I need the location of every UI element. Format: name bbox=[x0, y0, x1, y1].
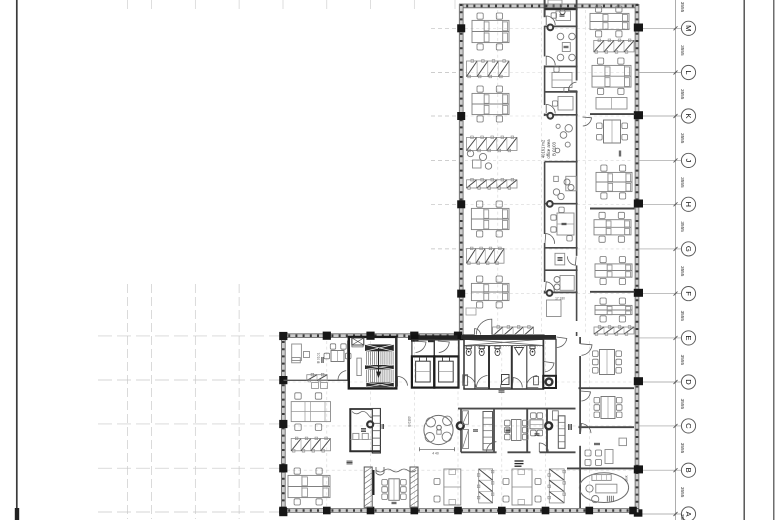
svg-text:B 0103: B 0103 bbox=[552, 141, 557, 155]
svg-text:office area: office area bbox=[546, 139, 551, 159]
svg-text:3555: 3555 bbox=[680, 443, 685, 454]
svg-text:3555: 3555 bbox=[680, 514, 685, 520]
svg-text:K: K bbox=[684, 113, 693, 118]
svg-text:3555: 3555 bbox=[680, 2, 685, 13]
svg-text:D: D bbox=[684, 379, 693, 385]
svg-text:3555: 3555 bbox=[680, 311, 685, 322]
svg-text:B 0103: B 0103 bbox=[408, 416, 412, 426]
svg-text:E: E bbox=[684, 335, 693, 340]
svg-text:3555: 3555 bbox=[680, 355, 685, 366]
svg-text:3555: 3555 bbox=[680, 221, 685, 232]
svg-text:L: L bbox=[684, 70, 693, 74]
svg-text:J: J bbox=[684, 159, 693, 163]
svg-text:B: B bbox=[684, 468, 693, 473]
svg-text:3555: 3555 bbox=[680, 89, 685, 100]
svg-text:4 40: 4 40 bbox=[432, 452, 439, 456]
svg-text:C: C bbox=[684, 423, 693, 429]
svg-text:3555: 3555 bbox=[680, 45, 685, 56]
svg-text:F: F bbox=[684, 291, 693, 296]
svg-text:3555: 3555 bbox=[680, 133, 685, 144]
svg-text:B 0101: B 0101 bbox=[317, 353, 321, 364]
svg-text:G: G bbox=[684, 246, 693, 252]
svg-text:40161 m2: 40161 m2 bbox=[541, 139, 546, 158]
svg-text:M: M bbox=[684, 25, 693, 31]
svg-text:3555: 3555 bbox=[680, 487, 685, 498]
svg-text:3555: 3555 bbox=[680, 266, 685, 277]
svg-text:3555: 3555 bbox=[680, 177, 685, 188]
svg-text:disk: disk bbox=[625, 475, 629, 481]
svg-text:H: H bbox=[684, 202, 693, 207]
svg-text:3555: 3555 bbox=[680, 399, 685, 410]
